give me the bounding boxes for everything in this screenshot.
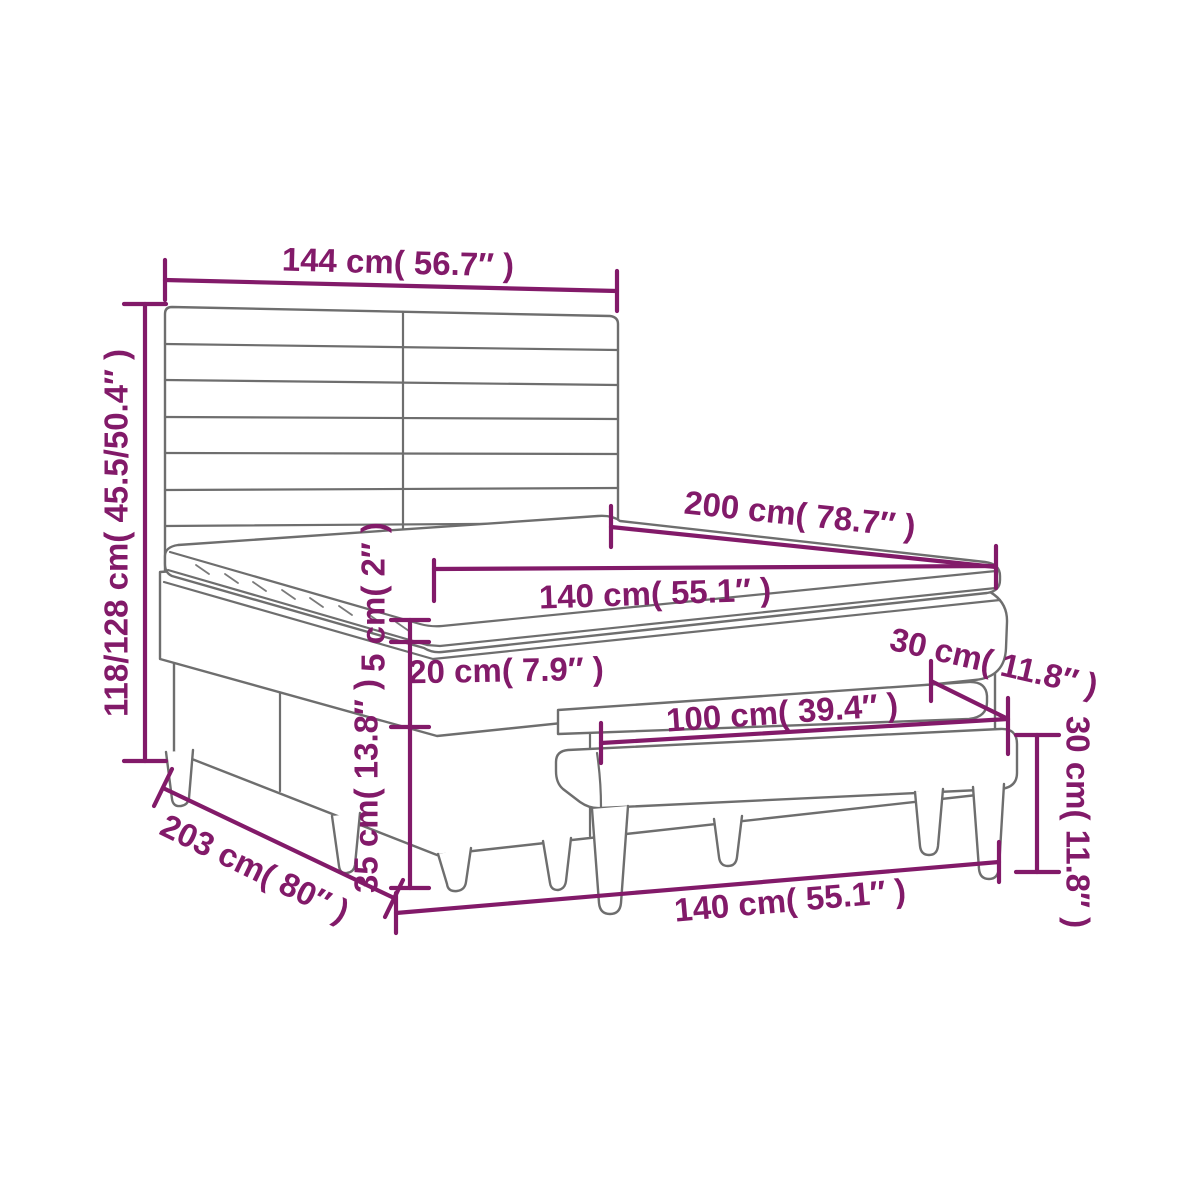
bench-leg (714, 816, 742, 866)
dim-headboard-width-label: 144 cm( 56.7″ ) (281, 241, 514, 284)
bench-leg (915, 789, 943, 855)
dim-tick (154, 769, 172, 806)
dim-frame-length-label: 203 cm( 80″ ) (155, 807, 355, 930)
dim-bench-height-label: 30 cm( 11.8″ ) (1059, 716, 1096, 928)
dim-headboard-height: 118/128 cm( 45.5/50.4″ ) (98, 304, 166, 761)
diagram-canvas: 144 cm( 56.7″ ) 118/128 cm( 45.5/50.4″ )… (0, 0, 1200, 1200)
dim-line (434, 566, 996, 569)
dim-line (165, 280, 617, 291)
bed-dimension-diagram: 144 cm( 56.7″ ) 118/128 cm( 45.5/50.4″ )… (0, 0, 1200, 1200)
dim-headboard-width: 144 cm( 56.7″ ) (165, 241, 617, 311)
bed-leg (543, 838, 571, 890)
dim-bed-width: 140 cm( 55.1″ ) (396, 842, 999, 933)
dim-mattress-thickness-label: 20 cm( 7.9″ ) (408, 650, 604, 690)
dim-topper-thickness-label: 5 cm( 2″ ) (355, 522, 392, 672)
dim-base-height-label: 35 cm( 13.8″ ) (348, 679, 385, 893)
dim-bench-height: 30 cm( 11.8″ ) (1016, 716, 1096, 928)
dim-headboard-height-label: 118/128 cm( 45.5/50.4″ ) (98, 349, 135, 717)
headboard-slat-line (165, 453, 618, 454)
bed-leg (438, 848, 471, 891)
